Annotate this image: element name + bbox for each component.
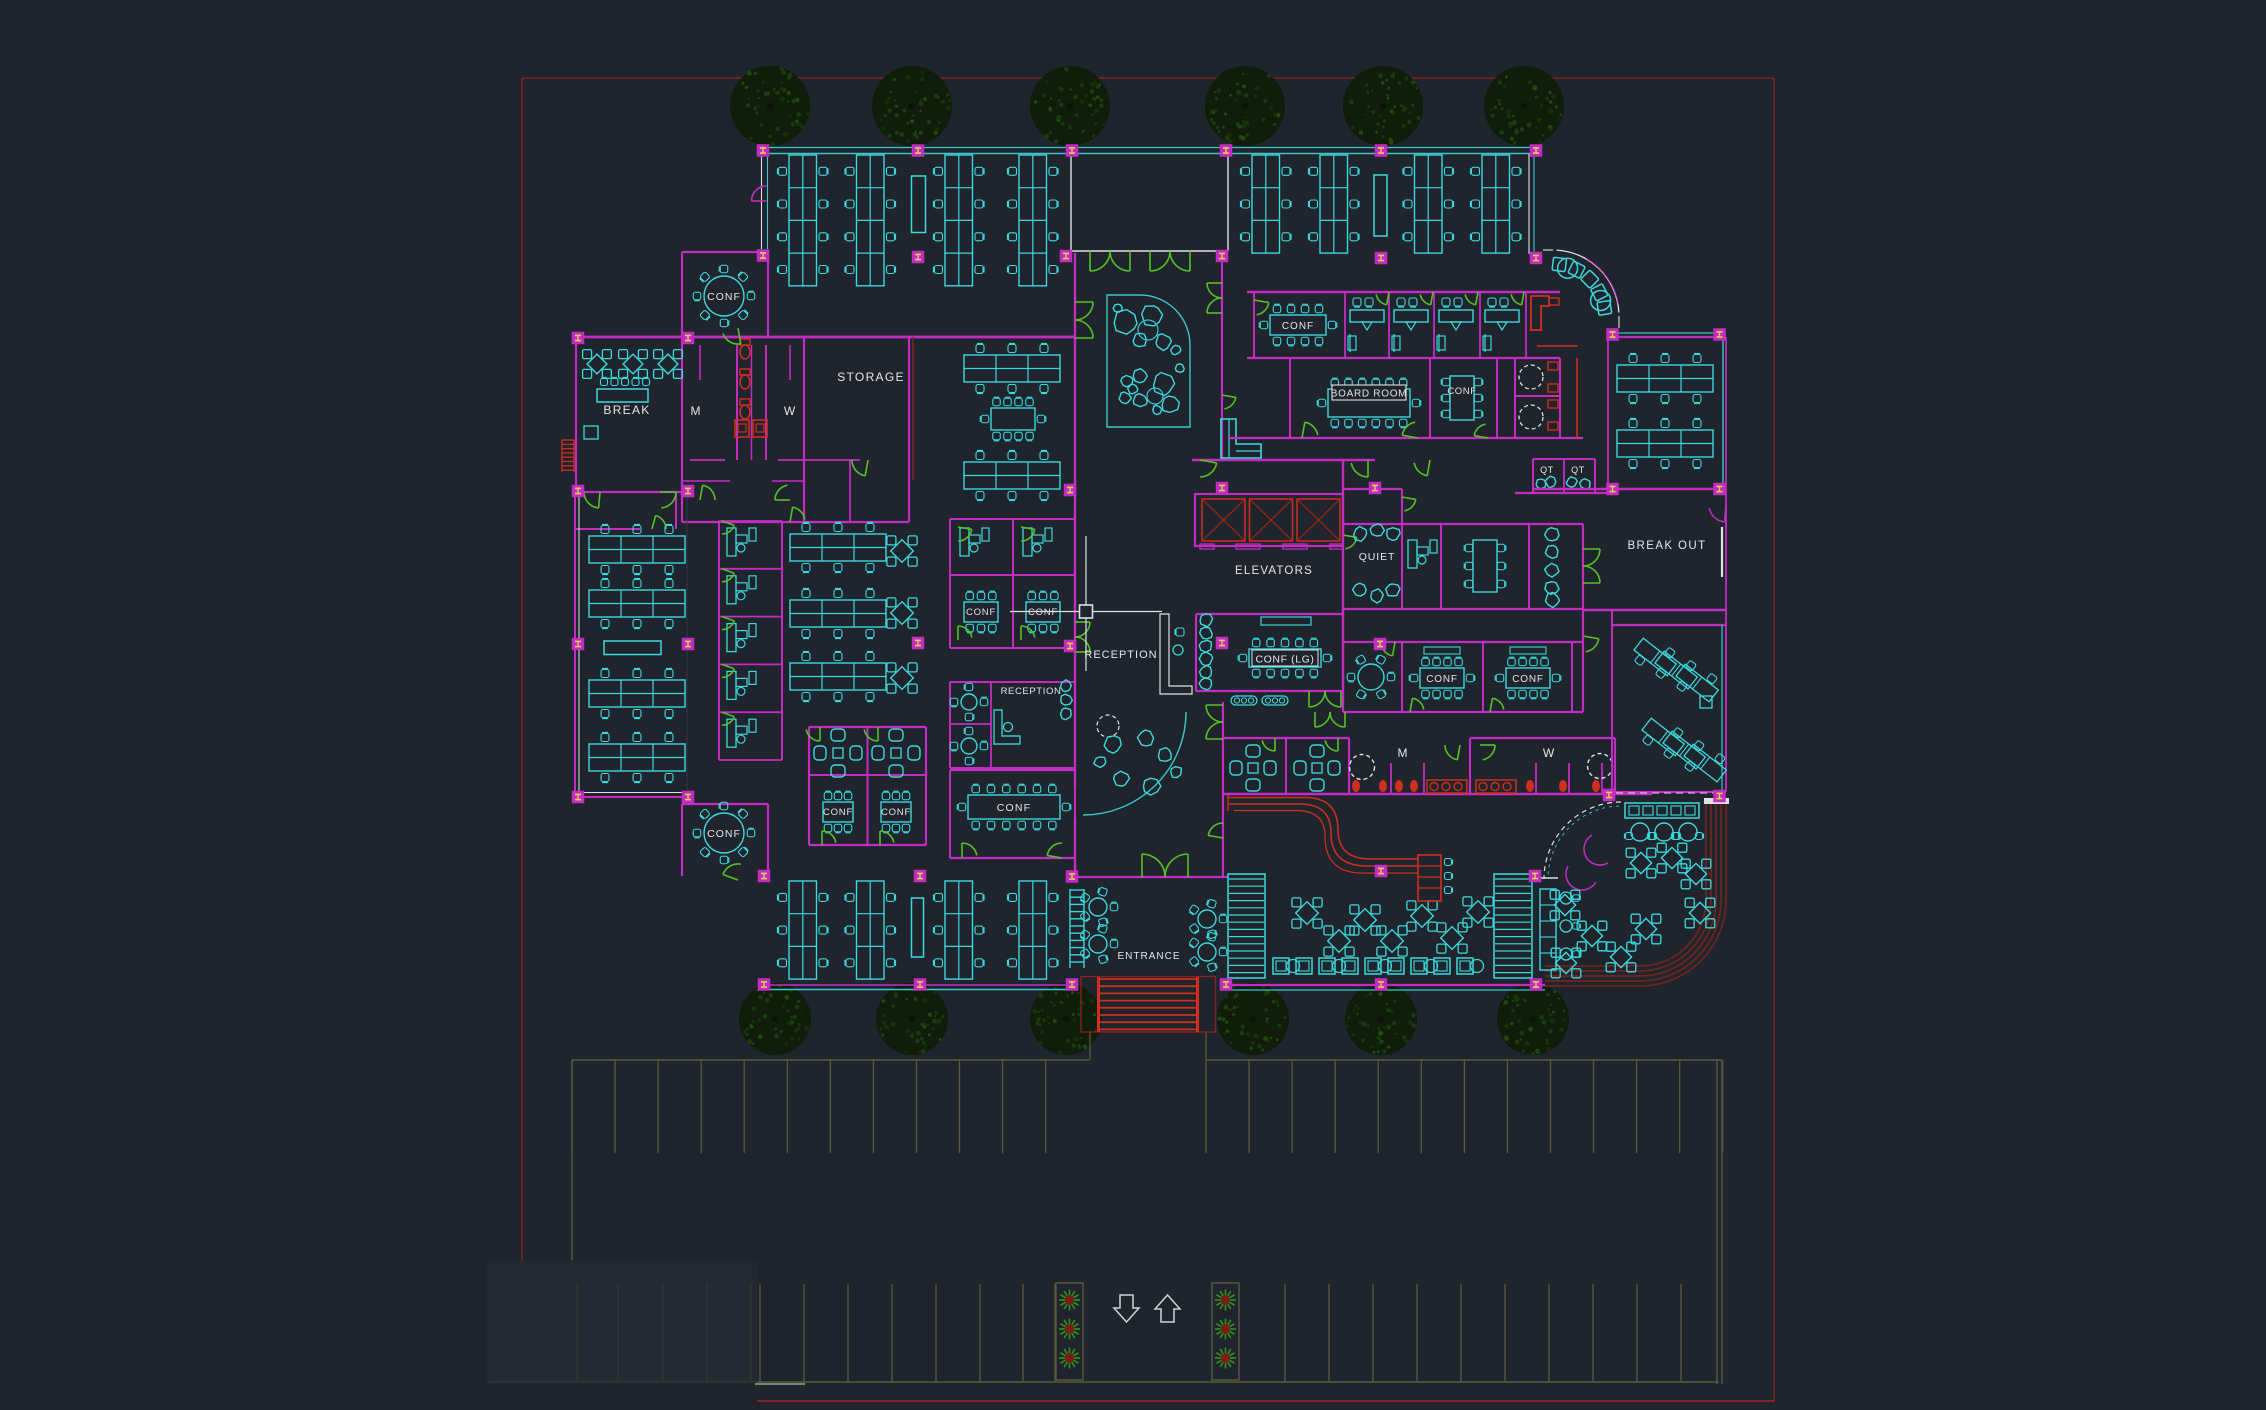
svg-text:CONF (LG): CONF (LG) (1255, 654, 1314, 666)
svg-text:QT: QT (1571, 465, 1585, 475)
svg-text:BREAK OUT: BREAK OUT (1627, 540, 1706, 552)
svg-text:CONF: CONF (997, 802, 1032, 814)
svg-text:STORAGE: STORAGE (837, 370, 905, 384)
svg-text:ELEVATORS: ELEVATORS (1235, 565, 1313, 577)
svg-text:QUIET: QUIET (1359, 551, 1396, 563)
svg-text:CONF: CONF (881, 807, 911, 818)
svg-text:M: M (1398, 746, 1409, 760)
svg-text:BOARD ROOM: BOARD ROOM (1331, 389, 1407, 400)
svg-text:CONF: CONF (1426, 674, 1458, 685)
svg-text:CONF: CONF (1028, 607, 1058, 618)
svg-text:QT: QT (1540, 465, 1554, 475)
svg-text:BREAK: BREAK (603, 403, 650, 417)
svg-text:RECEPTION: RECEPTION (1001, 686, 1062, 697)
svg-text:W: W (1543, 746, 1555, 760)
svg-text:M: M (691, 404, 702, 418)
svg-text:CONF: CONF (1282, 321, 1314, 332)
svg-text:CONF: CONF (707, 828, 741, 840)
svg-text:W: W (784, 404, 796, 418)
svg-text:CONF: CONF (823, 807, 853, 818)
svg-text:ENTRANCE: ENTRANCE (1117, 951, 1180, 962)
svg-text:CONF: CONF (1512, 674, 1544, 685)
svg-text:CONF: CONF (707, 291, 741, 303)
svg-text:RECEPTION: RECEPTION (1084, 649, 1157, 661)
svg-text:CONF: CONF (1447, 386, 1476, 397)
svg-text:CONF: CONF (966, 607, 996, 618)
